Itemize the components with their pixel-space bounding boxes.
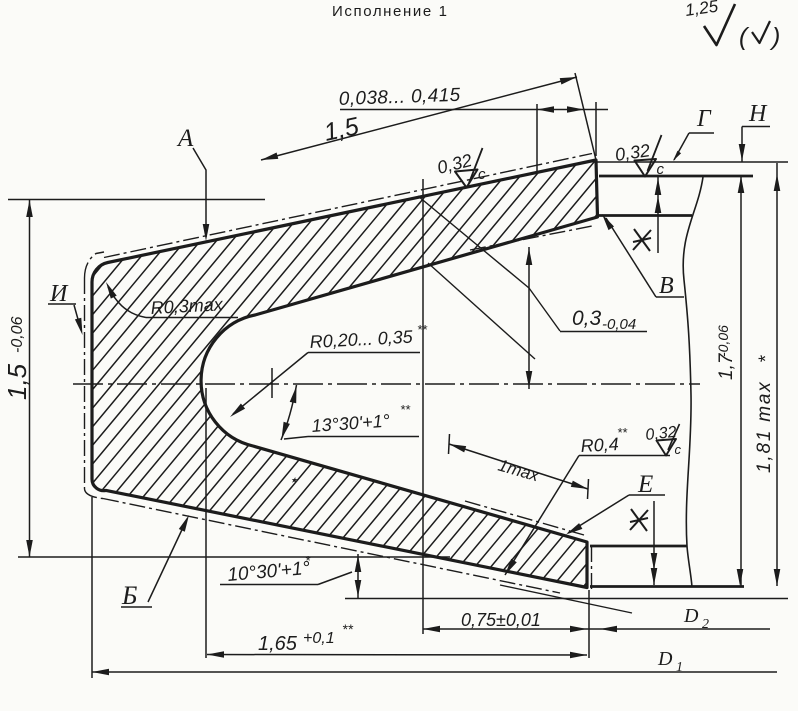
- svg-text:Г: Г: [696, 106, 712, 132]
- svg-text:c: c: [657, 161, 665, 178]
- svg-text:0,75±0,01: 0,75±0,01: [461, 610, 541, 630]
- svg-text:**: **: [400, 402, 411, 417]
- svg-text:Н: Н: [748, 101, 768, 127]
- svg-text:**: **: [342, 621, 353, 637]
- svg-text:В: В: [659, 273, 674, 299]
- svg-text:А: А: [176, 125, 194, 152]
- svg-text:*: *: [756, 355, 777, 363]
- svg-text:R0,3mах: R0,3mах: [150, 294, 224, 318]
- svg-text:D: D: [683, 605, 699, 627]
- svg-text:1,5: 1,5: [2, 363, 32, 400]
- svg-text:-0,04: -0,04: [602, 316, 636, 333]
- svg-text:-0,06: -0,06: [715, 325, 731, 357]
- svg-text:0,038... 0,415: 0,038... 0,415: [338, 85, 460, 110]
- svg-text:1,81 mах: 1,81 mах: [754, 380, 775, 473]
- svg-text:Б: Б: [121, 581, 137, 610]
- svg-text:0,3: 0,3: [572, 307, 602, 330]
- svg-text:c: c: [478, 166, 486, 183]
- svg-text:Е: Е: [637, 471, 653, 498]
- svg-text:R0,4: R0,4: [580, 434, 619, 456]
- svg-text:1,65: 1,65: [258, 633, 298, 655]
- svg-text:Исполнение 1: Исполнение 1: [332, 3, 449, 20]
- svg-text:٭: ٭: [290, 472, 298, 487]
- svg-text:D: D: [657, 648, 673, 670]
- svg-text:И: И: [49, 281, 69, 307]
- svg-text:-0,06: -0,06: [9, 316, 26, 353]
- svg-text:+0,1: +0,1: [303, 630, 335, 647]
- svg-text:2: 2: [702, 617, 709, 632]
- svg-text:c: c: [675, 442, 682, 457]
- svg-text:**: **: [617, 425, 628, 440]
